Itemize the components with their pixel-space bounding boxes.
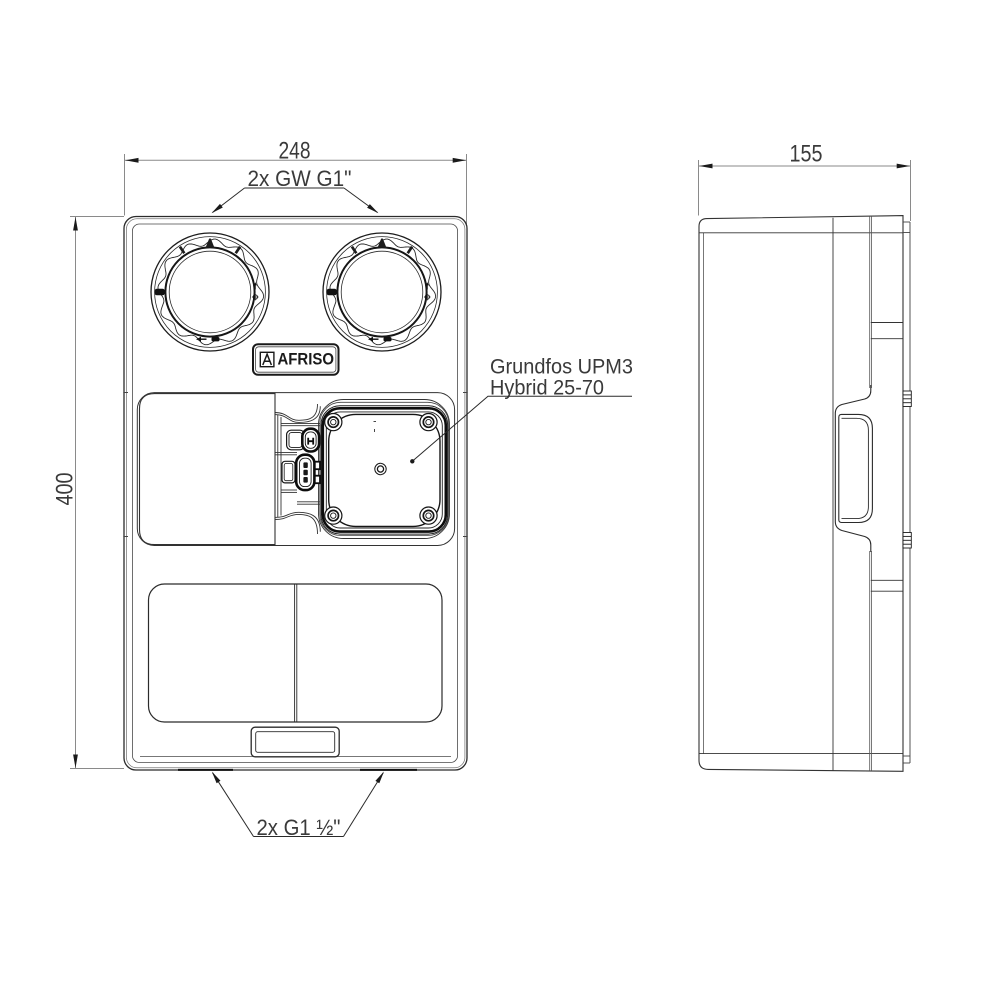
svg-text:248: 248 (279, 137, 311, 164)
svg-text:400: 400 (52, 473, 79, 506)
svg-text:2x G1 ½": 2x G1 ½" (257, 815, 341, 840)
svg-text:Hybrid 25-70: Hybrid 25-70 (490, 375, 604, 399)
svg-text:2x GW G1": 2x GW G1" (248, 166, 352, 191)
svg-text:155: 155 (790, 141, 823, 168)
svg-text:AFRISO: AFRISO (278, 350, 335, 368)
